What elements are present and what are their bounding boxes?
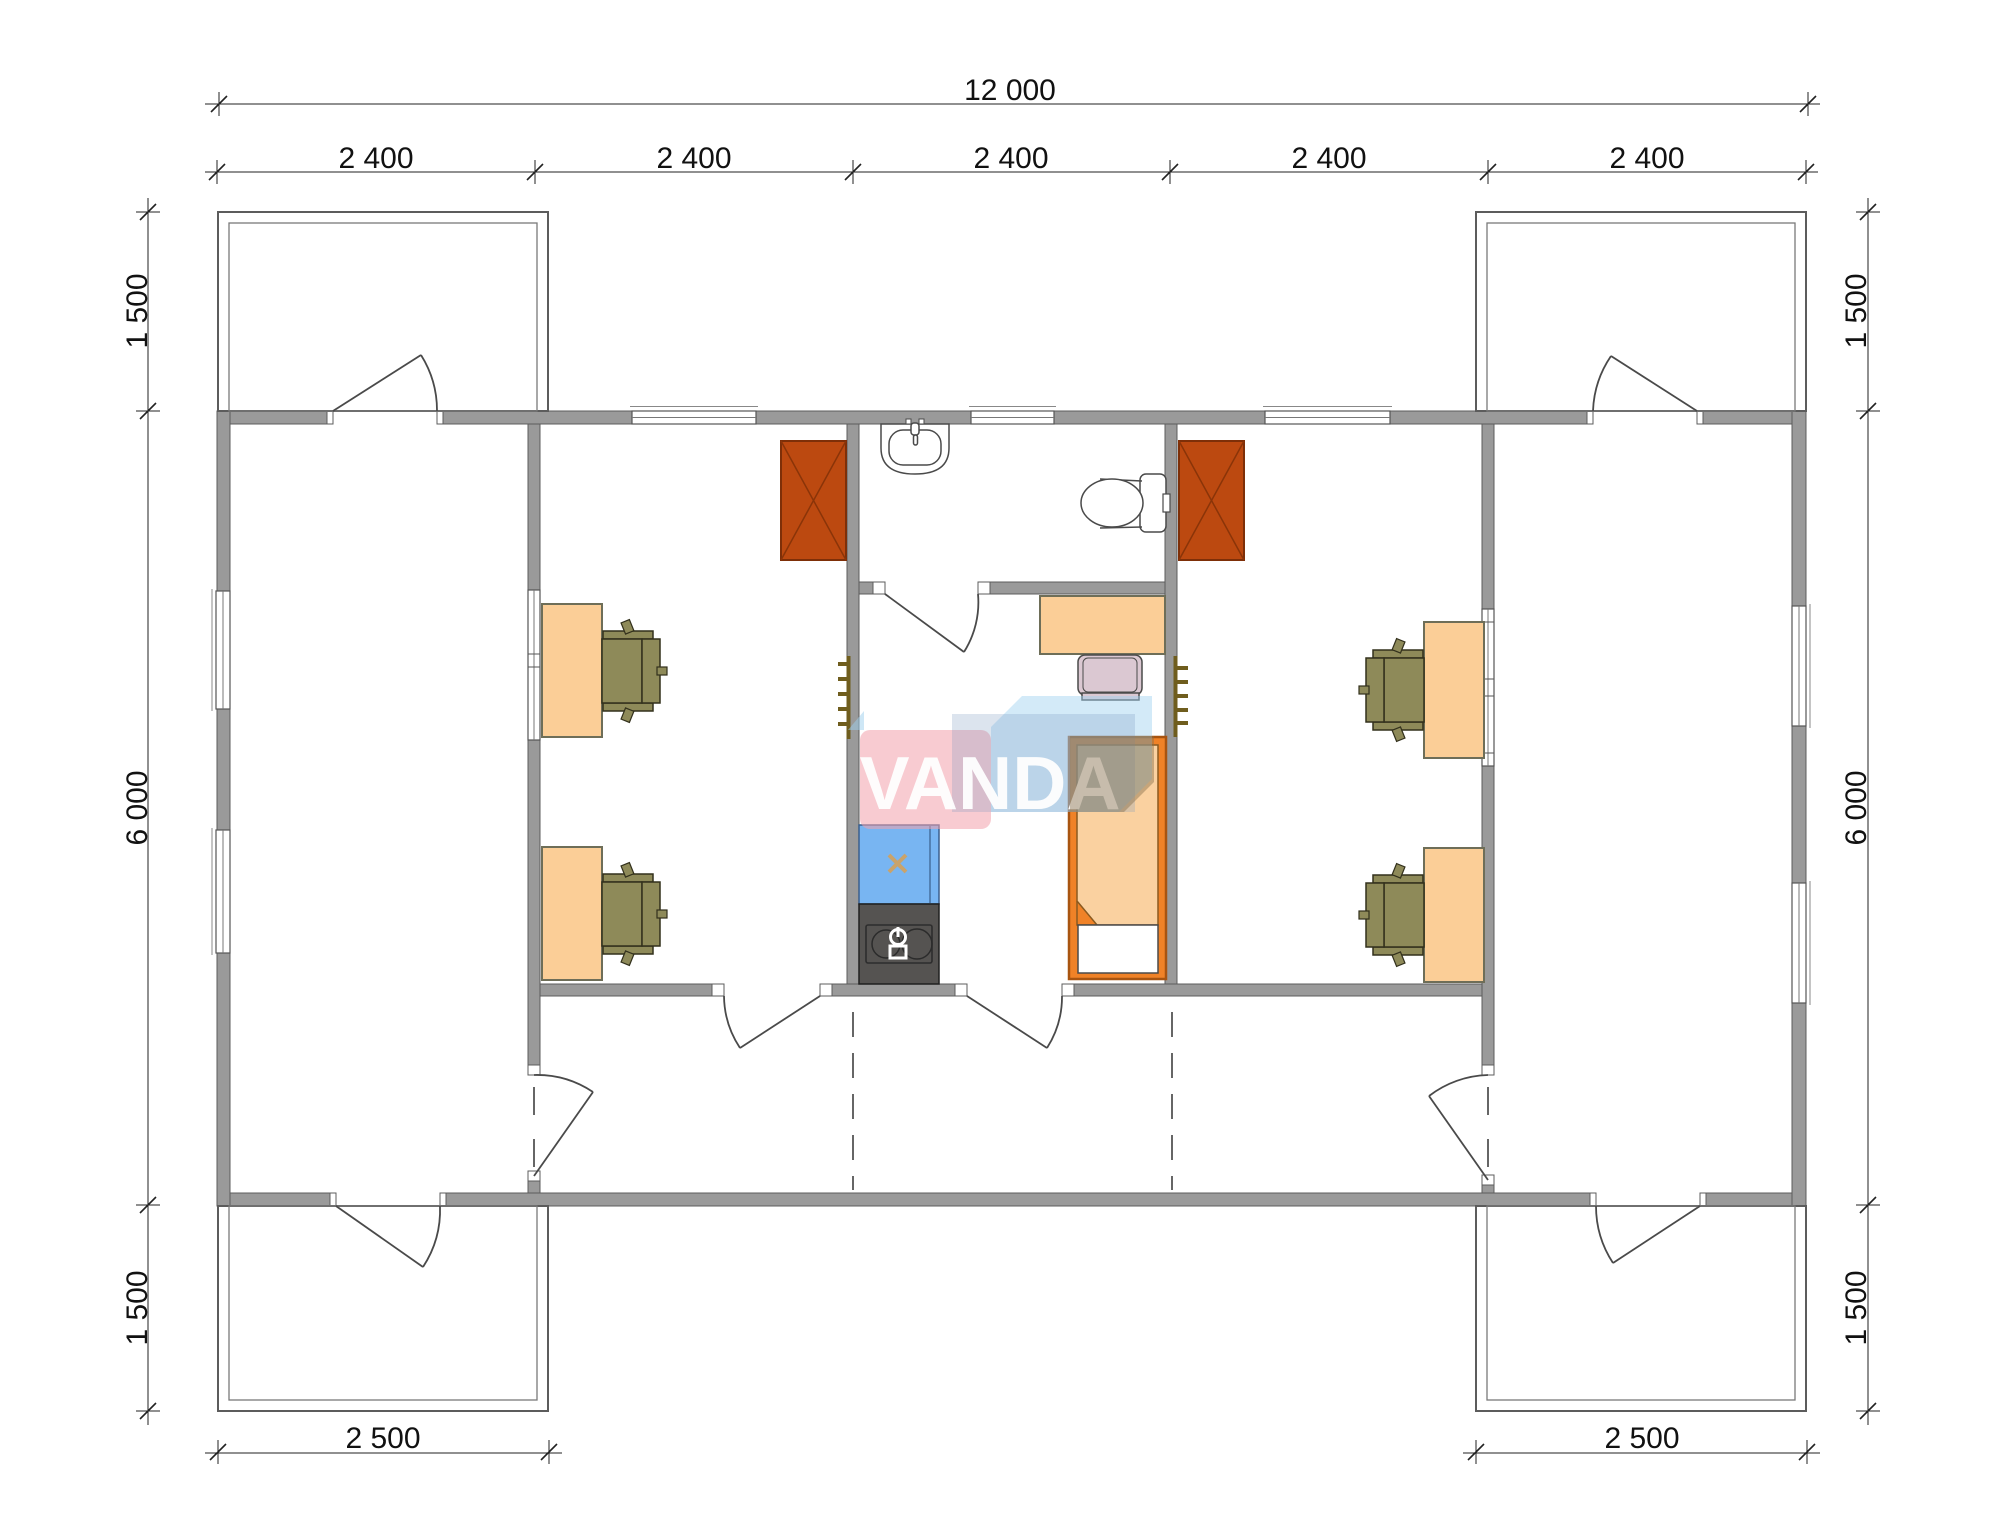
svg-text:2 400: 2 400	[1291, 142, 1366, 175]
svg-text:6 000: 6 000	[1840, 770, 1873, 845]
svg-text:1 500: 1 500	[121, 273, 154, 348]
svg-text:6 000: 6 000	[121, 770, 154, 845]
svg-text:2 500: 2 500	[1604, 1422, 1679, 1455]
svg-text:1 500: 1 500	[1840, 273, 1873, 348]
svg-text:2 400: 2 400	[973, 142, 1048, 175]
svg-text:2 400: 2 400	[656, 142, 731, 175]
svg-text:1 500: 1 500	[121, 1270, 154, 1345]
svg-text:2 500: 2 500	[345, 1422, 420, 1455]
svg-text:12 000: 12 000	[964, 74, 1056, 107]
svg-text:2 400: 2 400	[338, 142, 413, 175]
svg-text:1 500: 1 500	[1840, 1270, 1873, 1345]
svg-text:2 400: 2 400	[1609, 142, 1684, 175]
